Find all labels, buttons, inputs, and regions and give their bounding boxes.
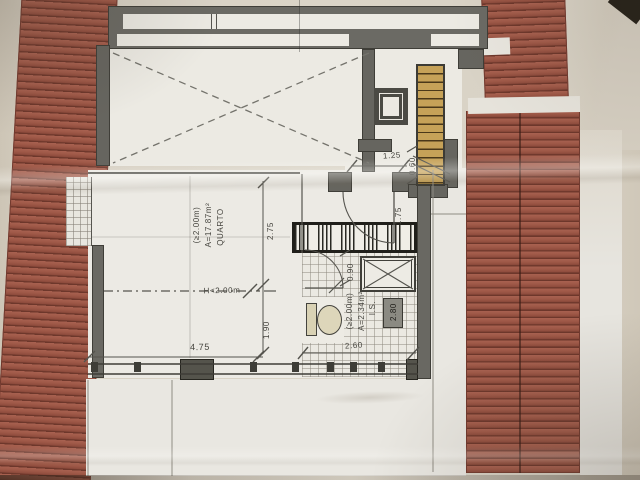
top-facade-wall	[108, 6, 488, 49]
dim-bedroom-width: 4.75	[190, 343, 210, 351]
dim-bedroom-depth-lower: 1.90	[263, 321, 271, 339]
roof-gutter-band	[468, 96, 580, 114]
void-room-floor	[110, 49, 372, 166]
fold-line	[299, 0, 300, 52]
facade-pillar	[180, 359, 214, 380]
bedroom-area-label: A=17.87m²	[205, 203, 213, 248]
dim-bedroom-depth-upper: 2.75	[267, 222, 275, 240]
shower-tray-rim	[364, 260, 412, 288]
bedroom-height-note-label: (≥2.00m)	[193, 207, 201, 244]
chimney-shaft	[374, 88, 408, 125]
wall	[444, 139, 458, 188]
roof-ridge-line	[519, 111, 521, 473]
toilet-bowl	[317, 305, 342, 335]
wall	[458, 49, 484, 69]
bathroom-name-label: I.S.	[369, 301, 377, 315]
dim-shower-width: 0.90	[347, 263, 355, 281]
bathroom-area-label: A=2.34m²	[358, 291, 366, 331]
terrace-outer	[580, 130, 622, 475]
window-strip	[123, 14, 479, 29]
wall	[328, 172, 352, 192]
window-strip	[431, 34, 479, 46]
skylight-grid-panel	[66, 177, 92, 246]
window-mullion	[211, 14, 217, 29]
bathroom-height-note-label: (≥2.00m)	[346, 293, 354, 330]
staircase	[416, 64, 445, 186]
terrace-side-floor	[431, 168, 466, 476]
roof-tiles-right-lower	[466, 111, 580, 473]
wall	[358, 139, 392, 152]
height-limit-label: H<2.00m	[203, 287, 240, 296]
dim-wall-height: 2.80	[390, 303, 398, 321]
shower-tray	[360, 256, 416, 292]
dim-bathroom-width: 2.60	[345, 341, 363, 350]
bedroom-name-label: QUARTO	[217, 208, 225, 246]
bedroom-left-wall	[92, 245, 104, 378]
wardrobe	[292, 222, 417, 253]
facade-end-post	[406, 359, 418, 380]
dim-landing-depth: 0.60	[409, 157, 417, 175]
chimney-flue	[380, 94, 402, 119]
bedroom-right-wall	[417, 184, 431, 379]
dim-landing-width: 1.25	[383, 151, 401, 160]
dim-door-passage: 1.75	[395, 207, 403, 225]
floor-plan-photo: QUARTO A=17.87m² (≥2.00m) 2.75 1.90 H<2.…	[0, 0, 640, 480]
wall	[96, 45, 110, 166]
toilet-cistern	[306, 303, 317, 336]
window-strip	[117, 34, 349, 46]
